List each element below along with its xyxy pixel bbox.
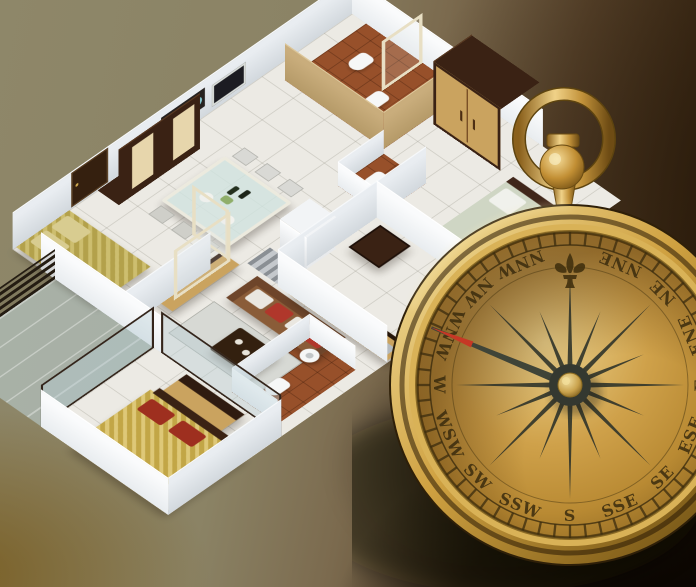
compass-label-W: W [430,375,449,395]
wall-unit-panel [132,133,153,189]
compass-tick [585,233,586,246]
teacup [233,338,244,346]
compass-tick [418,400,431,401]
wall-unit-panel [173,104,194,160]
compass-tick [418,369,431,370]
wine-bottle [237,190,251,200]
compass-tick [585,524,586,537]
brass-compass: NNENEENEEESESESSESSSWSWWSWWWNWNWNNW [352,28,696,587]
vastu-floorplan-compass-image: NNENEENEEESESESSESSSWSWWSWWWNWNWNNW [0,0,696,587]
compass-ring-handle [519,94,609,214]
hub-glint [562,377,570,385]
compass-tick [554,524,555,537]
compass-label-E: E [691,378,696,391]
compass-tick [554,233,555,246]
ball-highlight [549,153,561,165]
hub-knob [558,373,582,397]
compass-label-S: S [564,506,577,525]
door-knob [76,183,79,188]
handle-ball [540,145,584,189]
basin-drain [304,352,315,360]
